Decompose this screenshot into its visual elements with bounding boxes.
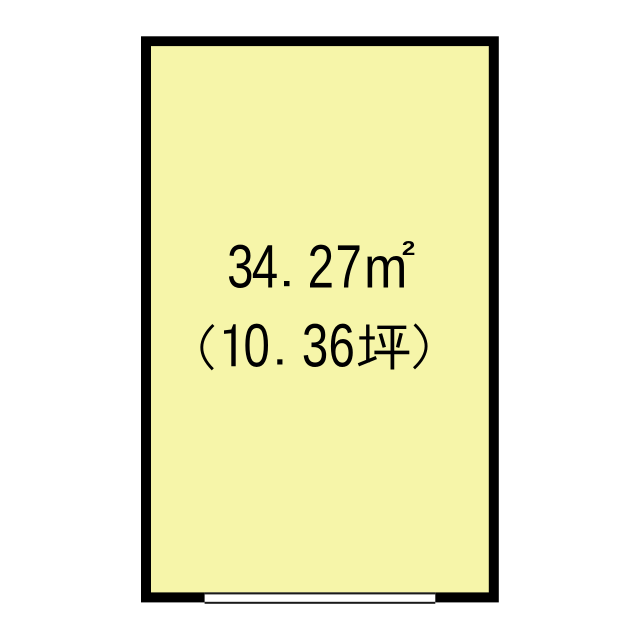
svg-text:3: 3 [227,233,253,301]
svg-text:7: 7 [336,233,362,301]
svg-text:4: 4 [252,233,278,301]
svg-text:2: 2 [402,237,415,260]
svg-text:0: 0 [244,312,270,380]
svg-text:3: 3 [302,312,328,380]
svg-text:6: 6 [328,312,354,380]
svg-text:2: 2 [308,233,334,301]
